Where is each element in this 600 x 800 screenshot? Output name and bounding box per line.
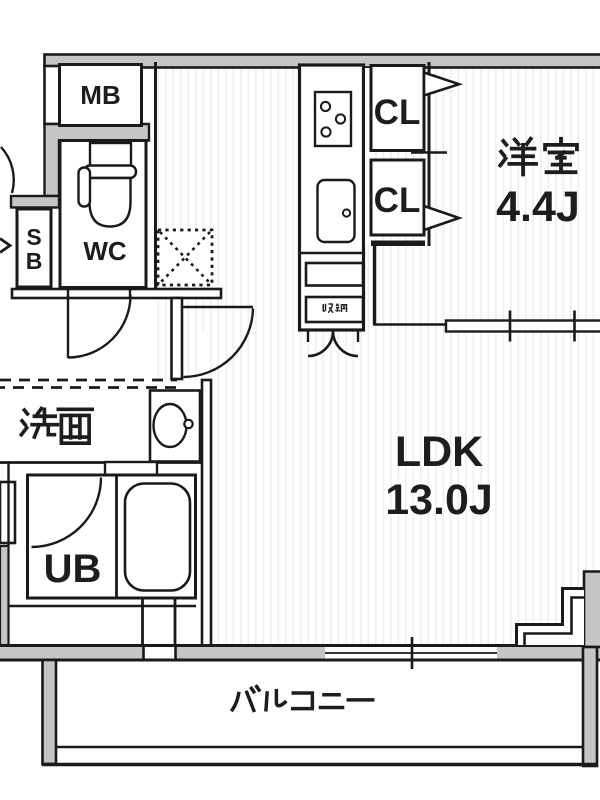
- svg-text:4.4J: 4.4J: [496, 183, 580, 231]
- svg-text:LDK: LDK: [395, 428, 483, 476]
- svg-text:MB: MB: [80, 80, 120, 110]
- svg-text:UB: UB: [44, 547, 102, 591]
- svg-text:WC: WC: [83, 236, 127, 266]
- svg-text:CL: CL: [374, 93, 421, 132]
- svg-text:13.0J: 13.0J: [385, 476, 493, 524]
- svg-text:CL: CL: [374, 181, 421, 220]
- svg-text:B: B: [26, 248, 43, 274]
- svg-text:S: S: [26, 224, 41, 250]
